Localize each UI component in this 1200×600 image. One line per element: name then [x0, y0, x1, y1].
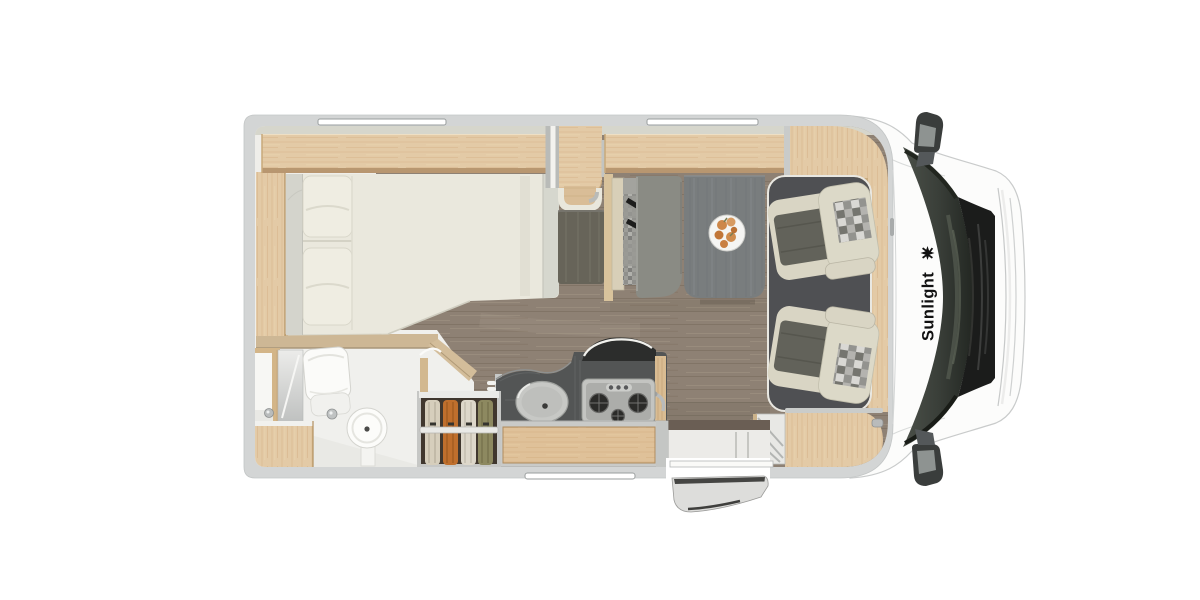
svg-text:Sunlight: Sunlight: [920, 272, 938, 341]
